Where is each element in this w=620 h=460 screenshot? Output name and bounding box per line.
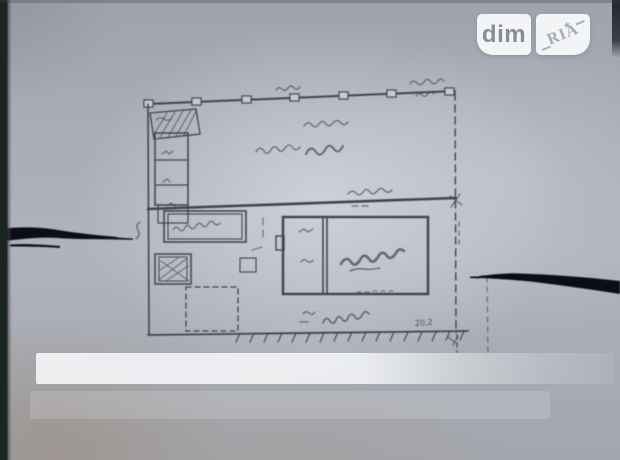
handwriting-annotation <box>348 189 392 195</box>
fence-post <box>445 88 454 95</box>
ink-stroke-left <box>0 227 133 248</box>
handwriting-annotation <box>304 121 348 127</box>
left-edge-shadow <box>0 0 12 460</box>
outbuilding-room-dividers <box>155 160 188 185</box>
small-structure <box>240 258 256 272</box>
white-redaction-bar <box>36 353 614 384</box>
fence-post <box>290 94 299 101</box>
plot-boundary-right-dashed <box>455 93 456 333</box>
right-edge-shadow <box>612 0 620 58</box>
watermark: dim ★ RIA <box>477 14 590 55</box>
fence-post <box>339 92 348 99</box>
house-area-label-underline <box>350 268 380 271</box>
inner-fence <box>148 198 456 209</box>
ink-stroke-right <box>470 273 620 294</box>
open-shed-dashed <box>186 287 238 331</box>
yard-marks <box>252 218 263 250</box>
outer-dashed-line <box>487 277 488 355</box>
fence-post <box>242 96 251 103</box>
room-number-scribbles <box>162 151 175 206</box>
watermark-ria-label: RIA <box>545 20 582 49</box>
handwriting-annotation <box>256 145 300 153</box>
watermark-dim-label: dim <box>482 21 526 49</box>
fence-post <box>387 90 396 97</box>
watermark-ria-badge: ★ RIA <box>536 14 590 55</box>
dimension-label: 20,2 <box>415 318 433 328</box>
house-bottom-dots <box>357 291 393 292</box>
handwriting-annotation <box>306 146 343 155</box>
outbuilding-column <box>155 133 188 205</box>
watermark-dim-badge: dim <box>477 14 531 55</box>
handwriting-annotation <box>301 260 313 263</box>
hatch-lines <box>160 258 189 281</box>
fence-post <box>192 98 201 105</box>
handwriting-annotation <box>299 229 313 232</box>
plot-boundary-left <box>148 104 149 335</box>
main-house-outline <box>283 217 428 294</box>
faint-redaction-bar <box>30 391 550 419</box>
handwriting-annotation <box>300 312 315 322</box>
house-area-label-scribble <box>341 249 404 264</box>
handwriting-annotation <box>276 86 300 90</box>
house-room-divider <box>323 217 327 294</box>
handwriting-annotation <box>136 222 140 239</box>
scanned-floor-plan-photo: 20,2 dim ★ RIA <box>0 0 620 460</box>
handwriting-annotation <box>410 79 444 85</box>
handwriting-annotation <box>323 312 369 324</box>
